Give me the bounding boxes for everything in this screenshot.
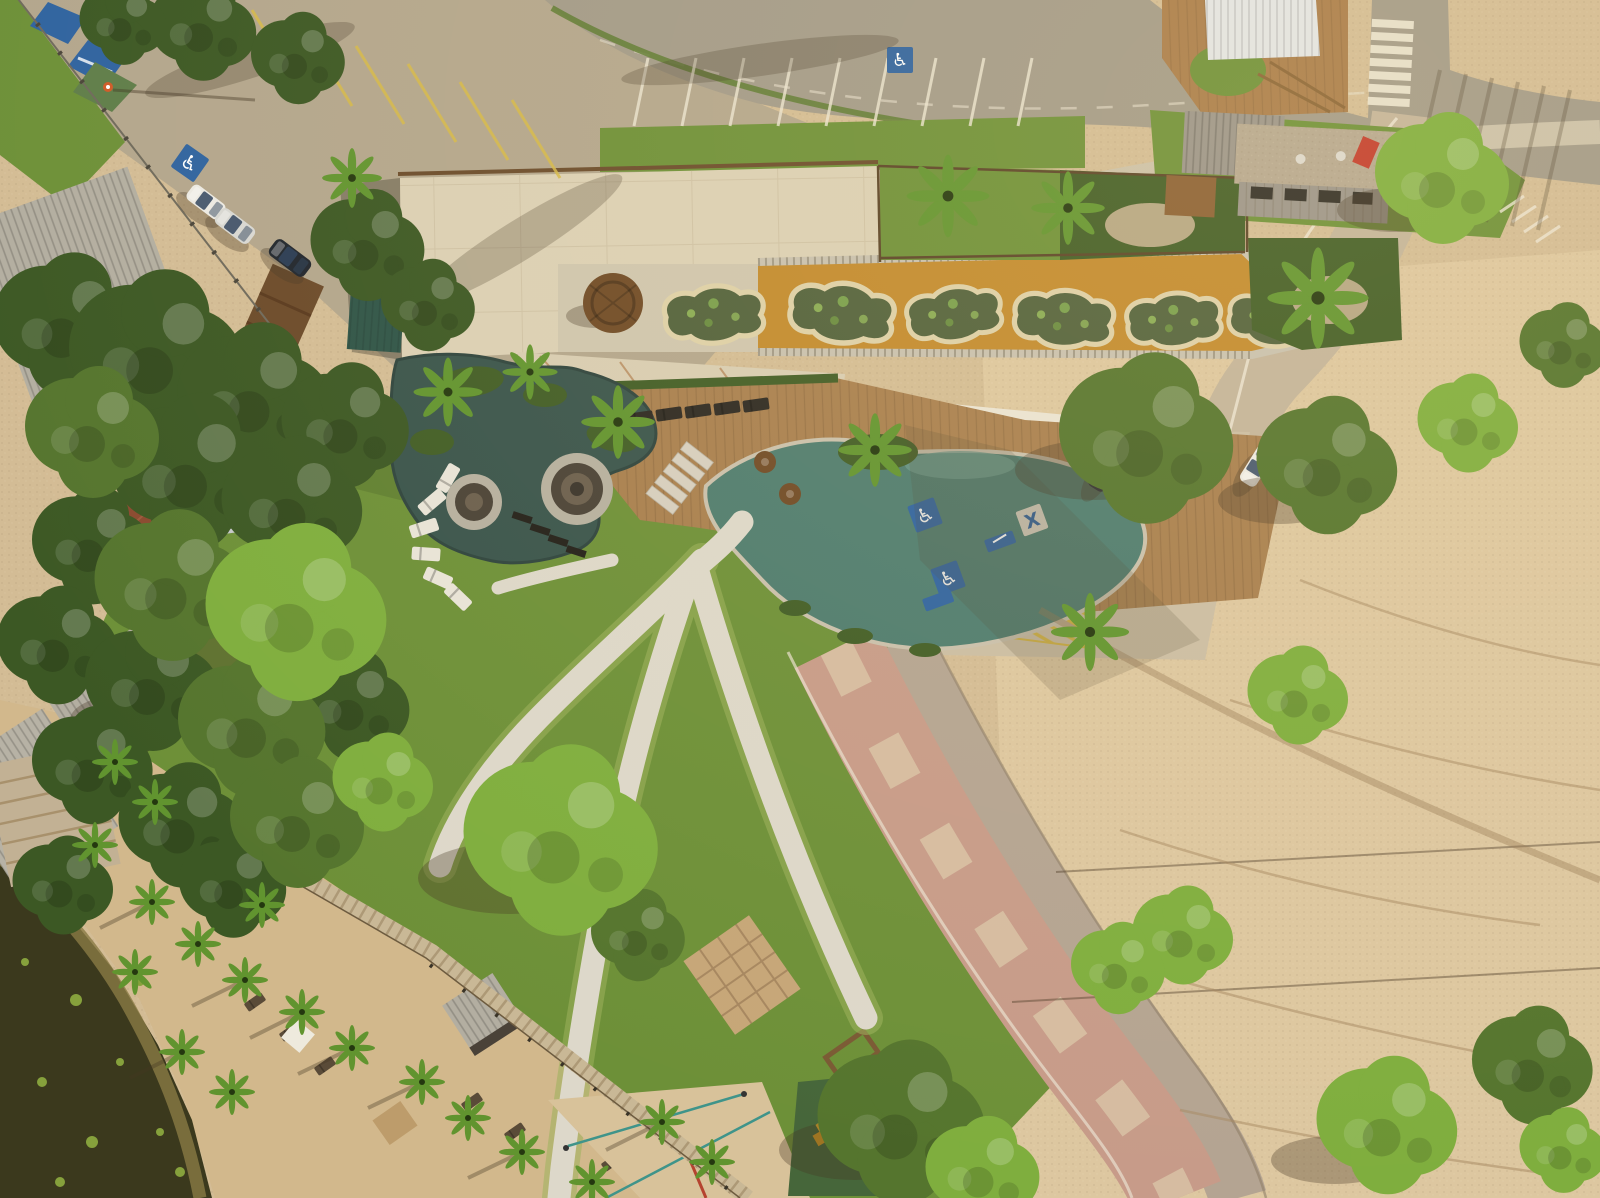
sunlight-overlay [0, 0, 1600, 1198]
aerial-photo: ♿ ♿ ♿ ♿ ♿ X [0, 0, 1600, 1198]
